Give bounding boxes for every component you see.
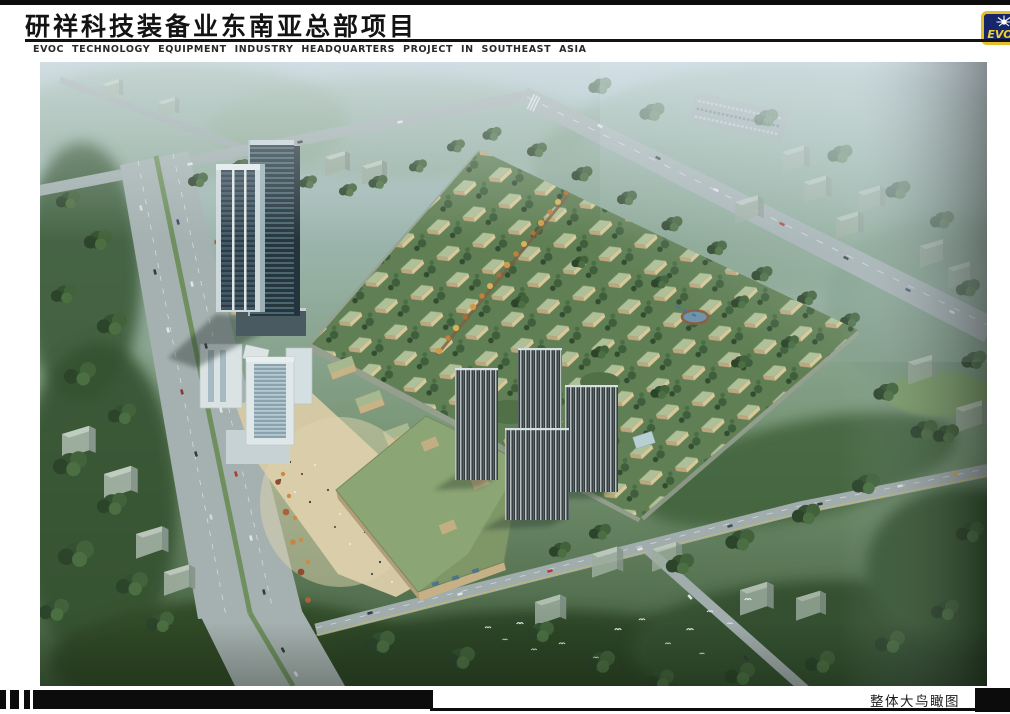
atmosphere-haze bbox=[40, 62, 987, 686]
presentation-board: 研祥科技装备业东南亚总部项目 EVOC EVOC TECHNOLOGY EQUI… bbox=[0, 0, 1010, 714]
sunburst-icon bbox=[997, 16, 1010, 27]
footer-corner-block bbox=[975, 688, 1010, 712]
aerial-rendering bbox=[40, 62, 987, 686]
footer-black-bar bbox=[33, 690, 433, 709]
page-subtitle: EVOC TECHNOLOGY EQUIPMENT INDUSTRY HEADQ… bbox=[33, 44, 587, 55]
figure-caption: 整体大鸟瞰图 bbox=[860, 690, 970, 710]
top-black-bar bbox=[0, 0, 1010, 5]
footer-stripe bbox=[0, 690, 6, 709]
title-underline bbox=[25, 39, 1010, 42]
page-title: 研祥科技装备业东南亚总部项目 bbox=[25, 7, 417, 43]
footer-stripe bbox=[10, 690, 19, 709]
footer-stripe bbox=[24, 690, 30, 709]
